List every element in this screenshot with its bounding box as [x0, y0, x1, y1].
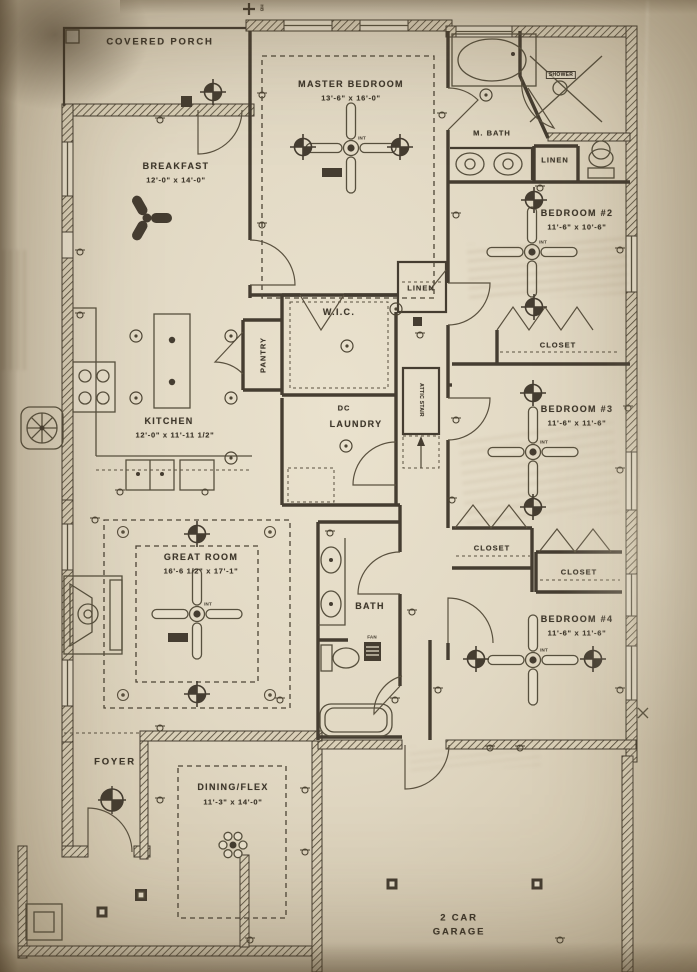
ceiling-fans [130, 103, 578, 705]
room-dims-bedroom-3: 11'-6" x 11'-6" [548, 419, 607, 428]
room-dims-master-bedroom: 13'-6" x 16'-0" [321, 94, 381, 103]
bath-heater-fan [364, 642, 381, 661]
master-tub [452, 34, 536, 86]
room-label-breakfast: BREAKFAST [143, 161, 210, 171]
room-dims-great-room: 16'-6 1/2" x 17'-1" [164, 567, 239, 576]
label-hose-bib: HB [260, 5, 265, 12]
room-dims-breakfast: 12'-0" x 14'-0" [146, 176, 206, 185]
room-label-linen-hall: LINEN [407, 284, 435, 293]
ac-unit [21, 407, 63, 449]
hose-bib-icon [243, 3, 255, 15]
room-label-covered-porch: COVERED PORCH [106, 37, 213, 48]
room-label-wic: W.I.C. [323, 307, 355, 317]
master-vanity [456, 153, 522, 175]
master-toilet [588, 141, 614, 178]
bath-toilet [321, 645, 359, 671]
room-label-great-room: GREAT ROOM [164, 552, 238, 562]
room-label-pantry: PANTRY [259, 337, 268, 373]
master-shower [530, 56, 602, 122]
room-dims-bedroom-4: 11'-6" x 11'-6" [548, 629, 607, 638]
fan-tag-master: INT [358, 136, 366, 141]
room-label-kitchen: KITCHEN [144, 416, 193, 426]
kitchen-island [154, 314, 190, 408]
floor-plan-photo: COVERED PORCH MASTER BEDROOM 13'-6" x 16… [0, 0, 697, 972]
room-dims-dining-flex: 11'-3" x 14'-0" [203, 798, 262, 807]
floor-plan-drawing [0, 0, 697, 972]
kitchen-range [73, 362, 115, 412]
room-label-dining-flex: DINING/FLEX [197, 782, 268, 792]
fan-tag-bed2: INT [539, 240, 547, 245]
room-label-laundry: LAUNDRY [330, 419, 383, 429]
room-label-foyer: FOYER [94, 757, 136, 768]
fan-tag-bed3: INT [540, 440, 548, 445]
bath-vanity [318, 538, 345, 625]
room-label-garage-line1: 2 CAR [440, 913, 478, 924]
room-label-m-bath: M. BATH [473, 129, 511, 138]
bath-tub [320, 704, 392, 736]
room-label-bedroom-4: BEDROOM #4 [541, 614, 614, 624]
room-label-linen-master: LINEN [541, 156, 569, 165]
room-dims-kitchen: 12'-0" x 11'-11 1/2" [136, 431, 215, 440]
room-label-dc: DC [338, 404, 351, 413]
room-label-bedroom-3: BEDROOM #3 [541, 404, 614, 414]
fan-tag-bed4: INT [540, 648, 548, 653]
room-label-attic-stair: ATTIC STAIR [418, 383, 424, 417]
room-dims-bedroom-2: 11'-6" x 10'-6" [547, 223, 606, 232]
room-label-closet-bed2: CLOSET [540, 341, 576, 350]
label-fan-note: FAN [367, 635, 377, 640]
room-label-bedroom-2: BEDROOM #2 [541, 208, 614, 218]
porch-column [26, 904, 62, 940]
room-label-closet-right: CLOSET [561, 568, 597, 577]
room-label-closet-left: CLOSET [474, 544, 510, 553]
room-label-bath: BATH [355, 601, 385, 611]
room-label-garage-line2: GARAGE [433, 927, 486, 938]
room-label-master-bedroom: MASTER BEDROOM [298, 79, 404, 89]
breakfast-fan [130, 194, 172, 242]
fan-tag-great: INT [204, 602, 212, 607]
room-label-shower: SHOWER [546, 71, 576, 79]
